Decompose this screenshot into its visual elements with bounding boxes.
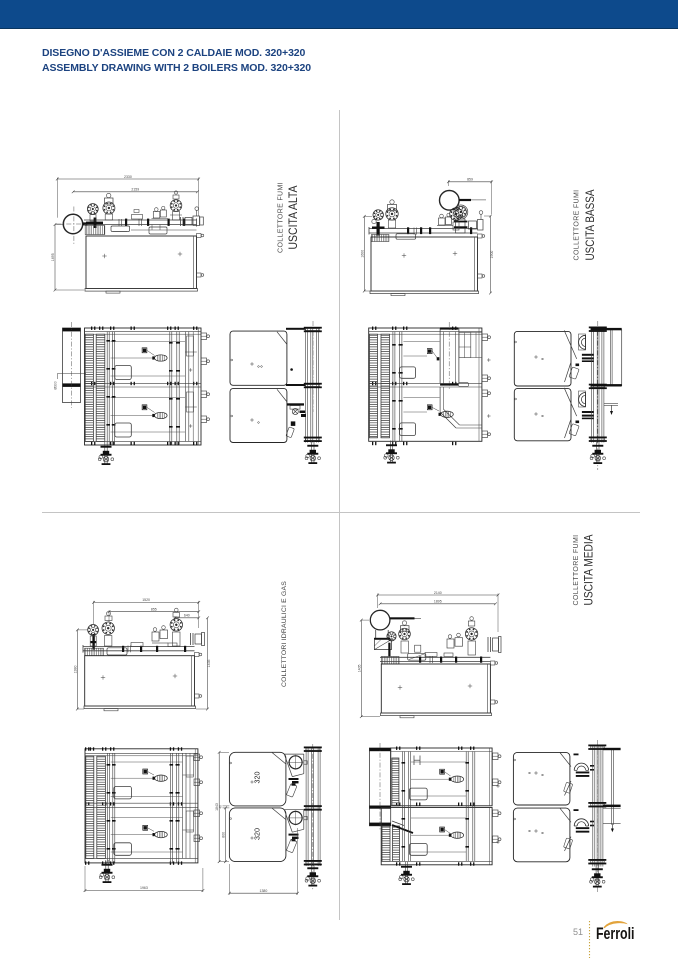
svg-text:1435: 1435 (207, 659, 211, 667)
svg-text:COLLETTORE FUMI: COLLETTORE FUMI (573, 535, 580, 606)
svg-text:1695: 1695 (51, 253, 55, 261)
svg-text:1380: 1380 (260, 889, 268, 893)
svg-text:1900: 1900 (490, 251, 494, 259)
svg-text:2330: 2330 (124, 175, 132, 179)
svg-text:2159: 2159 (131, 188, 139, 192)
svg-text:859: 859 (467, 178, 473, 182)
svg-text:320: 320 (253, 828, 262, 840)
svg-text:USCITA ALTA: USCITA ALTA (288, 185, 300, 249)
svg-text:800: 800 (222, 832, 226, 838)
svg-text:855: 855 (151, 608, 157, 612)
svg-text:1963: 1963 (140, 886, 148, 890)
svg-text:1380: 1380 (73, 666, 77, 674)
svg-text:Ferroli: Ferroli (596, 925, 635, 943)
svg-text:USCITA MEDIA: USCITA MEDIA (584, 534, 596, 605)
svg-text:1895: 1895 (434, 600, 442, 604)
svg-text:COLLETTORE FUMI: COLLETTORE FUMI (574, 190, 581, 261)
svg-text:40: 40 (219, 805, 223, 809)
svg-text:COLLETTORI IDRAULICI E GAS: COLLETTORI IDRAULICI E GAS (281, 581, 288, 687)
svg-text:320: 320 (253, 772, 262, 784)
svg-text:Ø300: Ø300 (54, 381, 58, 389)
svg-text:COLLETTORE FUMI: COLLETTORE FUMI (278, 182, 285, 253)
svg-text:1520: 1520 (142, 598, 150, 602)
svg-text:USCITA BASSA: USCITA BASSA (585, 189, 597, 260)
svg-text:1405: 1405 (357, 664, 361, 672)
svg-text:2140: 2140 (434, 591, 442, 595)
svg-text:640: 640 (184, 614, 190, 618)
svg-text:1600: 1600 (360, 250, 364, 258)
